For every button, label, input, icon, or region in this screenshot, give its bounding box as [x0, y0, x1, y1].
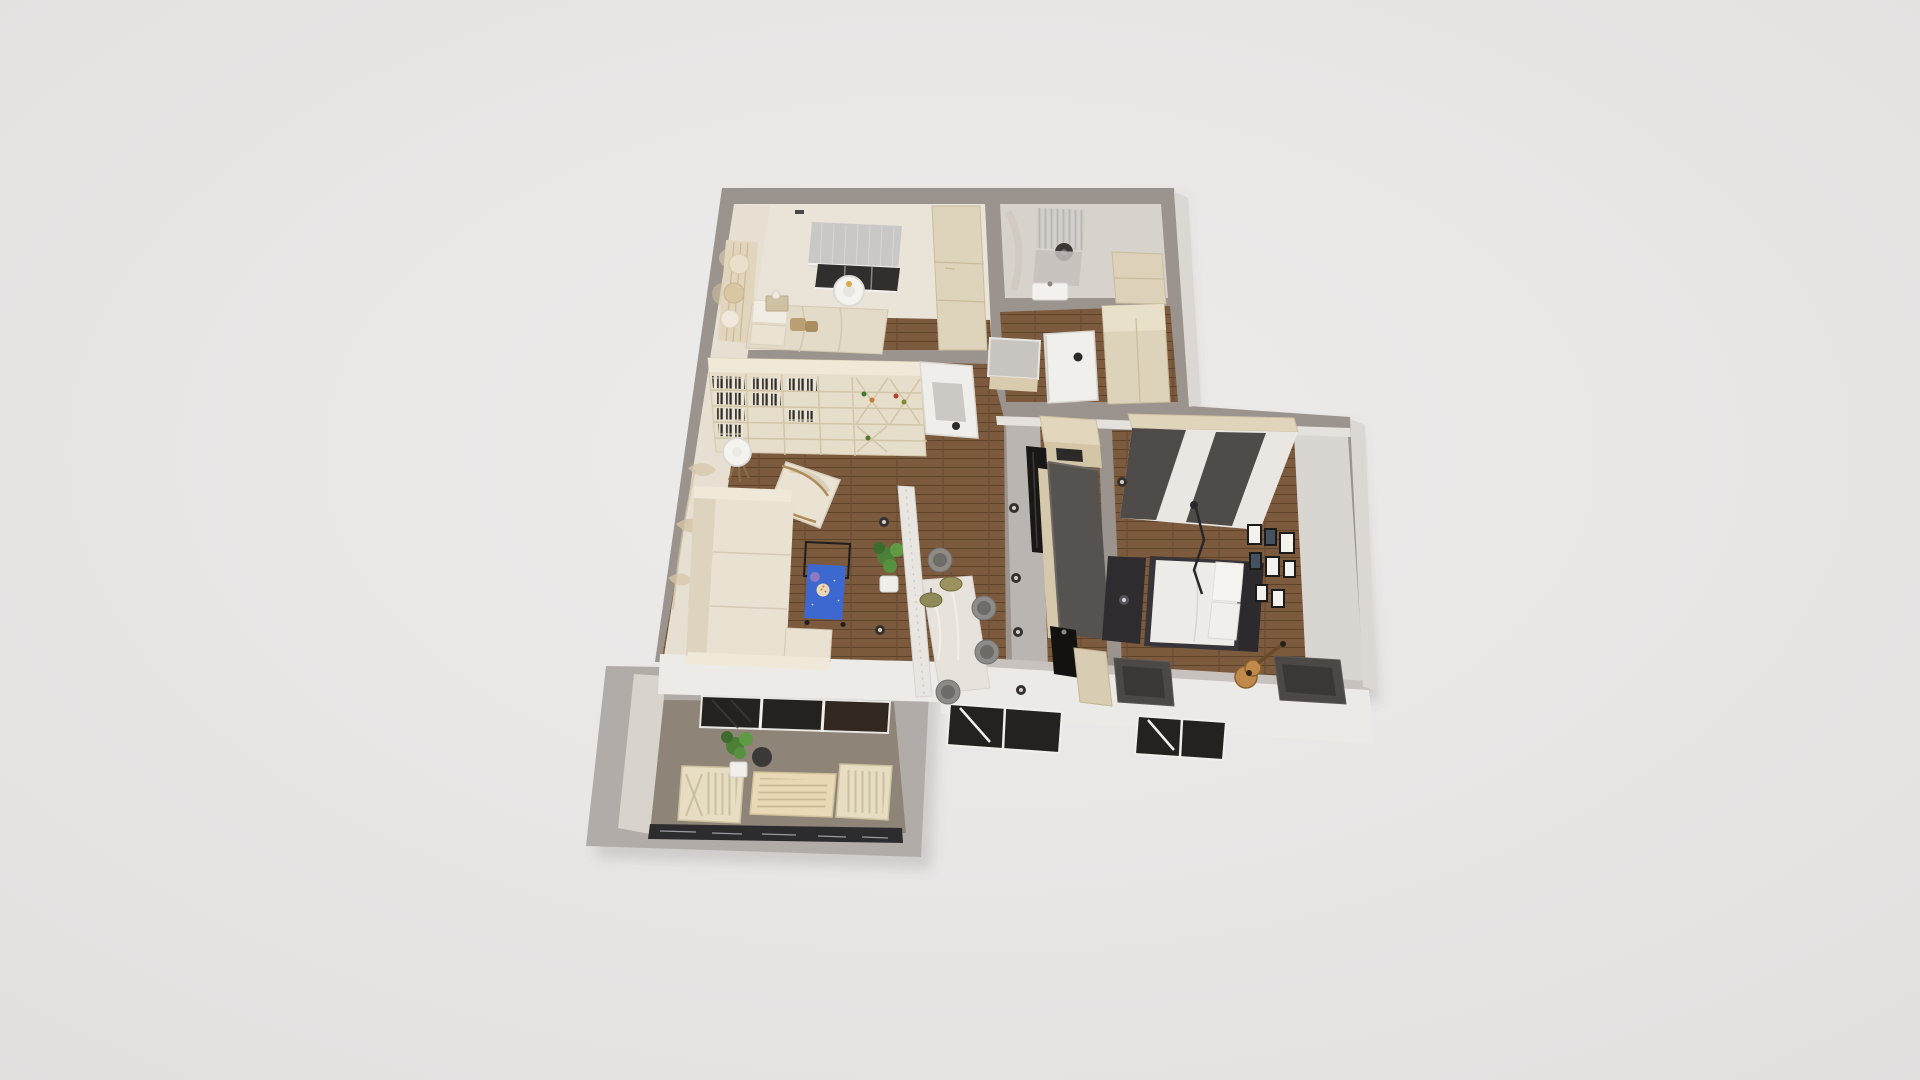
bedroom1-cushion-1: [729, 254, 749, 274]
cart-art-blob: [810, 572, 820, 582]
balcony-side-table: [752, 747, 772, 767]
guitar-head: [1280, 641, 1286, 647]
balcony-plant-pot: [730, 762, 747, 777]
hall-wardrobe-top: [1102, 304, 1166, 332]
dining-chair-3-seat: [980, 645, 994, 659]
balcony-plant-leaf-2: [739, 732, 753, 746]
bedroom1-pendant-bulb: [846, 281, 852, 287]
bedroom1-cushion-3: [721, 310, 739, 328]
frame-2: [1265, 529, 1276, 545]
bedroom2-dresser-light-core: [1122, 598, 1126, 602]
wine-bottle-5: [866, 436, 871, 441]
living-plant-pot: [880, 576, 898, 592]
books-row3b: [788, 410, 815, 422]
frame-3: [1280, 533, 1294, 553]
dining-pendant-2: [940, 577, 962, 591]
frame-8: [1272, 590, 1284, 607]
frame-6: [1284, 561, 1295, 577]
kitchen-tall-unit-top: [1040, 416, 1100, 446]
bedroom1-ceiling-vent: [795, 210, 804, 214]
floorplan-canvas[interactable]: [0, 0, 1920, 1080]
books-row1b: [750, 377, 781, 390]
hall-door-knob: [1074, 353, 1083, 362]
living-plant-leaf-2: [890, 543, 904, 557]
kitchen-south-cabinet: [1074, 648, 1112, 706]
dining-chair-2-seat: [977, 601, 991, 615]
floor-lamp-inner: [732, 447, 742, 457]
bedroom2-cabinet-se-inset: [1282, 664, 1336, 696]
cart-plate: [817, 584, 830, 597]
bathroom-slat-screen: [1035, 208, 1086, 250]
dining-chair-4-seat: [941, 685, 955, 699]
books-row1c: [786, 378, 817, 391]
render-viewport: [0, 0, 1920, 1080]
books-row3: [716, 408, 745, 421]
balcony-door-pane: [824, 701, 888, 732]
bedroom1-pillow-2: [750, 324, 786, 346]
bedroom2-pillow-2: [1208, 602, 1240, 640]
wine-bottle-1: [862, 392, 867, 397]
guitar-soundhole: [1246, 670, 1252, 676]
hall-door: [1044, 331, 1098, 403]
bedroom1-throw-pillow-1: [790, 318, 806, 331]
balcony-plant-leaf-3: [721, 731, 733, 743]
spotlight-5-core: [1016, 630, 1020, 634]
bathroom-faucet: [1048, 282, 1053, 287]
spotlight-1-core: [882, 520, 886, 524]
spotlight-7-core: [1120, 480, 1124, 484]
hall-art-panel: [988, 338, 1040, 379]
living-plant-leaf-4: [883, 559, 897, 573]
bedroom2-cabinet-sw-inset: [1122, 666, 1165, 698]
balcony-chair-left-slats: [703, 772, 738, 816]
balcony-chair-right-slats: [843, 770, 886, 814]
frame-5: [1266, 557, 1279, 576]
books-row1: [712, 376, 745, 389]
bathroom-shower-panel: [1033, 250, 1082, 286]
books-row2b: [752, 393, 781, 406]
bedroom1-cushion-2: [724, 283, 744, 303]
frame-4: [1250, 553, 1261, 569]
frame-7: [1256, 585, 1267, 601]
kitchen-faucet: [1062, 630, 1067, 635]
frame-1: [1248, 525, 1261, 544]
dining-pendant-1: [920, 593, 942, 607]
bedroom2-floor-lamp-head: [1190, 501, 1198, 509]
spotlight-4-core: [1014, 576, 1018, 580]
spotlight-6-core: [1019, 688, 1023, 692]
sofa-seat: [706, 497, 794, 662]
entry-door-knob: [952, 422, 960, 430]
dining-chair-1-seat: [933, 553, 947, 567]
wine-bottle-2: [870, 398, 875, 403]
wine-bottle-3: [894, 394, 899, 399]
bedroom2-pillow-1: [1212, 562, 1244, 602]
bedroom1-wardrobe: [932, 206, 987, 350]
books-row4: [718, 424, 743, 437]
spotlight-3-core: [1012, 506, 1016, 510]
living-plant-leaf-3: [873, 542, 885, 554]
bedroom1-throw-pillow-2: [805, 321, 818, 332]
balcony-plant-leaf-4: [734, 747, 746, 759]
bedroom1-table-lamp: [772, 291, 780, 299]
books-row2: [714, 392, 745, 405]
balcony-table-slats: [757, 778, 828, 810]
entry-door-inset: [932, 382, 966, 422]
spotlight-2-core: [878, 628, 882, 632]
kitchen-oven-inset: [1056, 448, 1083, 462]
wine-bottle-4: [902, 400, 907, 405]
